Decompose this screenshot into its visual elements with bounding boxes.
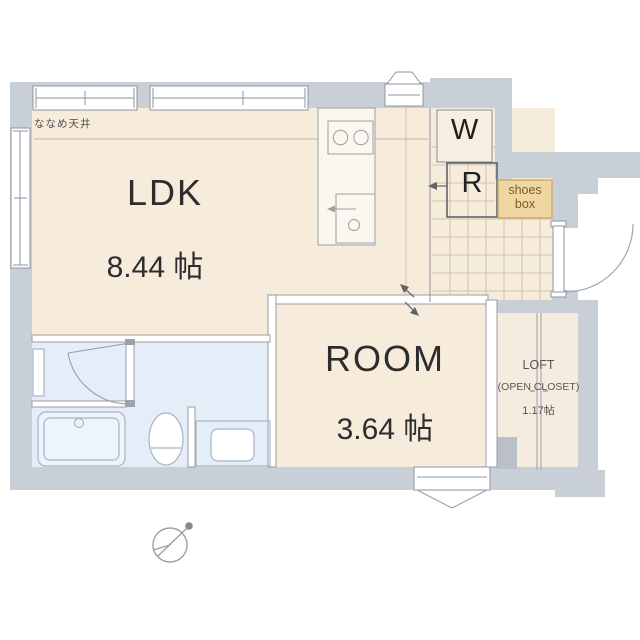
compass-needle xyxy=(157,528,187,557)
window-kitchen-bay xyxy=(385,72,423,106)
window-room-bottom xyxy=(414,467,490,508)
wall-loft-foot xyxy=(555,470,605,497)
shoes-box-label-line2: box xyxy=(515,197,535,211)
room-top-wall xyxy=(268,295,488,304)
loft-step-block xyxy=(497,437,517,469)
window-top-1 xyxy=(33,86,137,110)
entrance-door xyxy=(551,221,633,297)
entrance-door-leaf xyxy=(553,226,564,292)
room-area-label: 3.64 帖 xyxy=(295,404,475,448)
washer-label: W xyxy=(437,114,492,147)
ldk-room-label: LDK xyxy=(95,172,235,214)
room-label: ROOM xyxy=(300,338,470,380)
ldk-area-label: 8.44 帖 xyxy=(70,242,240,286)
toilet xyxy=(149,413,183,465)
wet-area-top-wall xyxy=(32,335,270,342)
kitchen xyxy=(318,108,375,245)
floor-plan-drawing xyxy=(0,0,640,640)
window-left xyxy=(11,128,30,268)
kitchen-sink xyxy=(336,194,375,243)
loft-area-label: 1.17帖 xyxy=(491,402,586,418)
loft-label: LOFT xyxy=(491,358,586,372)
bathtub xyxy=(38,412,125,466)
washroom-right-wall xyxy=(126,342,134,403)
kitchen-stove xyxy=(328,121,373,154)
vanity-sink xyxy=(211,429,254,461)
shoes-box-label: shoes box xyxy=(498,183,552,212)
wall-step-stub xyxy=(578,178,598,194)
wall-entry-top xyxy=(510,152,640,178)
floor-plan: ななめ天井 LDK 8.44 帖 W R shoes box ROOM 3.64… xyxy=(0,0,640,640)
toilet-divider-wall xyxy=(188,407,195,467)
fridge-label: R xyxy=(447,167,497,200)
shoes-box-label-line1: shoes xyxy=(508,183,541,197)
wall-bottom xyxy=(10,467,598,490)
entrance-door-swing-arc xyxy=(565,224,633,292)
room-left-wall xyxy=(268,295,276,467)
loft-subtitle-label: (OPEN CLOSET) xyxy=(478,381,599,393)
sloped-ceiling-note: ななめ天井 xyxy=(34,116,92,131)
washroom-shelf xyxy=(33,349,44,396)
compass-north-dot xyxy=(185,522,193,530)
window-top-2 xyxy=(150,86,308,110)
compass-icon xyxy=(153,522,193,562)
